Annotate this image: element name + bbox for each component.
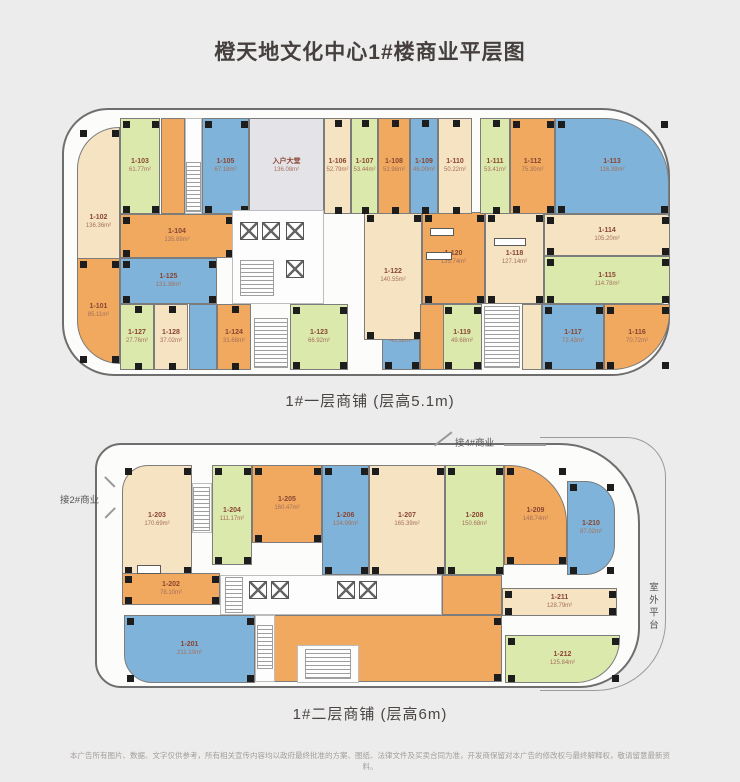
- column-marker-icon: [80, 261, 87, 268]
- column-marker-icon: [244, 468, 251, 475]
- unit-1-110: 1-11050.22m²: [438, 118, 472, 214]
- unit-label: 1-12727.76m²: [126, 329, 148, 345]
- unit-label: 1-212125.84m²: [550, 651, 575, 667]
- unit-1-204: 1-204111.17m²: [212, 465, 252, 565]
- column-marker-icon: [536, 215, 543, 222]
- column-marker-icon: [662, 296, 669, 303]
- column-marker-icon: [437, 468, 444, 475]
- column-marker-icon: [612, 638, 619, 645]
- equipment-box: [426, 252, 452, 260]
- unit-label: 1-207165.39m²: [394, 512, 419, 528]
- column-marker-icon: [547, 217, 554, 224]
- unit-1-210: 1-21087.02m²: [567, 481, 615, 575]
- unit-1-211: 1-211128.79m²: [502, 588, 617, 616]
- unit-1-106: 1-10652.79m²: [324, 118, 351, 214]
- caption-level2: 1#二层商铺 (层高6m): [0, 703, 740, 724]
- column-marker-icon: [255, 468, 262, 475]
- column-marker-icon: [125, 576, 132, 583]
- disclaimer-text: 本广告所有图片、数据、文字仅供参考，所有相关宣传内容均以政府最终批准的方案、图纸…: [70, 751, 670, 772]
- column-marker-icon: [215, 468, 222, 475]
- column-marker-icon: [127, 675, 134, 682]
- unit-label: 1-204111.17m²: [220, 507, 244, 523]
- unit-label: 1-206124.99m²: [333, 512, 358, 528]
- column-marker-icon: [425, 215, 432, 222]
- unit-1-116: 1-11670.72m²: [604, 304, 670, 370]
- leader-line: [504, 444, 546, 446]
- column-marker-icon: [662, 362, 669, 369]
- column-marker-icon: [152, 121, 159, 128]
- column-marker-icon: [112, 356, 119, 363]
- column-marker-icon: [340, 307, 347, 314]
- column-marker-icon: [448, 567, 455, 574]
- column-marker-icon: [325, 468, 332, 475]
- column-marker-icon: [596, 362, 603, 369]
- elevator-icon: [286, 260, 304, 278]
- unit-1-109: 1-10946.00m²: [410, 118, 438, 214]
- unit-label: 1-10753.44m²: [353, 158, 375, 174]
- unit-1-104: 1-104135.89m²: [120, 214, 234, 258]
- column-marker-icon: [169, 306, 176, 313]
- unit-label: 1-102136.36m²: [86, 214, 111, 230]
- column-marker-icon: [612, 675, 619, 682]
- caption-level1: 1#一层商铺 (层高5.1m): [0, 390, 740, 411]
- elevator-icon: [262, 222, 280, 240]
- column-marker-icon: [362, 207, 369, 214]
- unit-1-113: 1-113116.39m²: [555, 118, 669, 214]
- column-marker-icon: [496, 468, 503, 475]
- column-marker-icon: [453, 120, 460, 127]
- floorplan-level1: 1-102136.36m²1-10361.77m²1-10567.18m²入户大…: [62, 108, 670, 376]
- column-marker-icon: [340, 362, 347, 369]
- unit-label: 1-11949.68m²: [451, 329, 473, 345]
- unit-label: 入户大堂136.08m²: [273, 158, 301, 174]
- column-marker-icon: [232, 306, 239, 313]
- column-marker-icon: [536, 296, 543, 303]
- unit-1-111: 1-11153.41m²: [480, 118, 510, 214]
- unit-1-112: 1-11275.30m²: [510, 118, 555, 214]
- unit-label: 1-208150.68m²: [462, 512, 487, 528]
- column-marker-icon: [314, 468, 321, 475]
- column-marker-icon: [609, 591, 616, 598]
- column-marker-icon: [507, 557, 514, 564]
- floor-plan-poster: 橙天地文化中心1#楼商业平层图 1-102136.36m²1-10361.77m…: [0, 0, 740, 782]
- unit-1-108: 1-10852.98m²: [378, 118, 410, 214]
- column-marker-icon: [437, 567, 444, 574]
- unit-label: 1-12366.92m²: [308, 329, 330, 345]
- annotation-connect-building2: 接2#商业: [60, 492, 99, 506]
- unit-1-118: 1-118127.14m²: [485, 212, 544, 304]
- column-marker-icon: [488, 296, 495, 303]
- column-marker-icon: [662, 259, 669, 266]
- column-marker-icon: [513, 121, 520, 128]
- column-marker-icon: [425, 296, 432, 303]
- unit-1-105: 1-10567.18m²: [202, 118, 249, 214]
- page-title: 橙天地文化中心1#楼商业平层图: [0, 36, 740, 66]
- column-marker-icon: [255, 535, 262, 542]
- unit-1-205: 1-205160.47m²: [252, 465, 322, 543]
- column-marker-icon: [558, 121, 565, 128]
- unit-1-107: 1-10753.44m²: [351, 118, 378, 214]
- column-marker-icon: [547, 296, 554, 303]
- unit-1-123: 1-12366.92m²: [290, 304, 348, 370]
- column-marker-icon: [127, 618, 134, 625]
- unit-label: 1-10652.79m²: [326, 158, 348, 174]
- unit-1-115: 1-115114.78m²: [544, 256, 670, 304]
- column-marker-icon: [123, 250, 130, 257]
- staircase-icon: [305, 649, 351, 679]
- unit-1-213: [257, 615, 502, 682]
- column-marker-icon: [247, 675, 254, 682]
- column-marker-icon: [488, 215, 495, 222]
- column-marker-icon: [361, 567, 368, 574]
- unit-1-208: 1-208150.68m²: [445, 465, 504, 575]
- unit-1-209: 1-209148.74m²: [504, 465, 567, 565]
- annotation-connect-building4: 接4#商业: [455, 435, 494, 449]
- column-marker-icon: [570, 484, 577, 491]
- unit-label: 1-10946.00m²: [413, 158, 435, 174]
- unit-label: 1-21087.02m²: [580, 520, 602, 536]
- unit-1-127: 1-12727.76m²: [120, 304, 154, 370]
- floorplan-level2: 1-203170.69m²1-204111.17m²1-205160.47m²1…: [95, 443, 640, 688]
- column-marker-icon: [80, 130, 87, 137]
- column-marker-icon: [609, 608, 616, 615]
- unit-label: 1-10852.98m²: [383, 158, 405, 174]
- unit-label: 1-11772.43m²: [562, 329, 584, 345]
- column-marker-icon: [367, 215, 374, 222]
- unit-label: 1-203170.69m²: [144, 512, 169, 528]
- unit-label: 1-11153.41m²: [484, 158, 506, 174]
- unit-1-206: 1-206124.99m²: [322, 465, 369, 575]
- equipment-box: [137, 565, 161, 574]
- column-marker-icon: [448, 468, 455, 475]
- column-marker-icon: [169, 363, 176, 370]
- column-marker-icon: [362, 120, 369, 127]
- column-marker-icon: [445, 362, 452, 369]
- elevator-icon: [240, 222, 258, 240]
- unit-label: 1-12837.02m²: [160, 329, 182, 345]
- column-marker-icon: [453, 207, 460, 214]
- staircase-icon: [240, 260, 274, 296]
- unit-label: 1-10361.77m²: [129, 158, 151, 174]
- unit-extension: [420, 304, 444, 370]
- unit-1-122: 1-122140.55m²: [364, 212, 422, 340]
- column-marker-icon: [607, 307, 614, 314]
- unit-1-125: 1-125131.38m²: [120, 258, 217, 304]
- column-marker-icon: [212, 597, 219, 604]
- elevator-icon: [359, 581, 377, 599]
- column-marker-icon: [247, 618, 254, 625]
- annotation-outdoor-platform: 室外平台: [645, 582, 659, 632]
- column-marker-icon: [547, 121, 554, 128]
- column-marker-icon: [392, 120, 399, 127]
- column-marker-icon: [445, 307, 452, 314]
- column-marker-icon: [152, 206, 159, 213]
- unit-label: 1-122140.55m²: [380, 268, 405, 284]
- column-marker-icon: [662, 307, 669, 314]
- unit-label: 1-12431.68m²: [223, 329, 245, 345]
- column-marker-icon: [661, 206, 668, 213]
- column-marker-icon: [507, 468, 514, 475]
- column-marker-icon: [293, 362, 300, 369]
- column-marker-icon: [474, 307, 481, 314]
- unit-label: 1-104135.89m²: [164, 228, 189, 244]
- column-marker-icon: [125, 597, 132, 604]
- equipment-box: [430, 228, 454, 236]
- column-marker-icon: [241, 121, 248, 128]
- column-marker-icon: [508, 675, 515, 682]
- unit-1-117: 1-11772.43m²: [542, 304, 604, 370]
- column-marker-icon: [335, 207, 342, 214]
- column-marker-icon: [607, 567, 614, 574]
- column-marker-icon: [372, 567, 379, 574]
- column-marker-icon: [205, 206, 212, 213]
- column-marker-icon: [112, 261, 119, 268]
- column-marker-icon: [232, 363, 239, 370]
- elevator-icon: [271, 581, 289, 599]
- column-marker-icon: [184, 468, 191, 475]
- unit-入户大堂: 入户大堂136.08m²: [249, 118, 324, 214]
- unit-label: 1-114105.20m²: [594, 227, 619, 243]
- column-marker-icon: [422, 120, 429, 127]
- column-marker-icon: [293, 307, 300, 314]
- unit-label: 1-211128.79m²: [547, 594, 572, 610]
- column-marker-icon: [314, 535, 321, 542]
- column-marker-icon: [123, 261, 130, 268]
- unit-label: 1-113116.39m²: [600, 158, 625, 174]
- unit-label: 1-20278.10m²: [160, 581, 182, 597]
- column-marker-icon: [80, 356, 87, 363]
- unit-label: 1-205160.47m²: [274, 496, 299, 512]
- equipment-box: [494, 238, 526, 246]
- unit-1-207: 1-207165.39m²: [369, 465, 445, 575]
- column-marker-icon: [477, 215, 484, 222]
- staircase-icon: [186, 162, 201, 212]
- elevator-icon: [249, 581, 267, 599]
- column-marker-icon: [367, 332, 374, 339]
- unit-1-103: 1-10361.77m²: [120, 118, 160, 214]
- unit-extension: [442, 575, 502, 615]
- column-marker-icon: [422, 207, 429, 214]
- column-marker-icon: [508, 638, 515, 645]
- staircase-icon: [257, 625, 273, 669]
- column-marker-icon: [112, 130, 119, 137]
- column-marker-icon: [123, 296, 130, 303]
- column-marker-icon: [209, 261, 216, 268]
- unit-label: 1-209148.74m²: [523, 507, 548, 523]
- column-marker-icon: [135, 306, 142, 313]
- staircase-icon: [254, 318, 288, 368]
- column-marker-icon: [477, 296, 484, 303]
- column-marker-icon: [209, 296, 216, 303]
- column-marker-icon: [493, 120, 500, 127]
- column-marker-icon: [559, 557, 566, 564]
- column-marker-icon: [496, 567, 503, 574]
- unit-label: 1-11275.30m²: [521, 158, 543, 174]
- column-marker-icon: [505, 608, 512, 615]
- unit-1-119: 1-11949.68m²: [442, 304, 482, 370]
- column-marker-icon: [385, 362, 392, 369]
- column-marker-icon: [493, 207, 500, 214]
- column-marker-icon: [392, 207, 399, 214]
- unit-label: 1-118127.14m²: [502, 250, 527, 266]
- column-marker-icon: [215, 557, 222, 564]
- column-marker-icon: [212, 576, 219, 583]
- unit-label: 1-125131.38m²: [156, 273, 181, 289]
- column-marker-icon: [662, 217, 669, 224]
- unit-1-114: 1-114105.20m²: [544, 214, 670, 256]
- column-marker-icon: [596, 307, 603, 314]
- unit-1-201: 1-201211.10m²: [124, 615, 255, 683]
- column-marker-icon: [123, 206, 130, 213]
- elevator-icon: [337, 581, 355, 599]
- unit-label: 1-10185.11m²: [88, 303, 110, 319]
- elevator-icon: [286, 222, 304, 240]
- column-marker-icon: [607, 484, 614, 491]
- unit-label: 1-11670.72m²: [626, 329, 648, 345]
- column-marker-icon: [513, 206, 520, 213]
- column-marker-icon: [412, 362, 419, 369]
- unit-label: 1-11050.22m²: [444, 158, 466, 174]
- column-marker-icon: [505, 591, 512, 598]
- staircase-icon: [193, 487, 210, 531]
- column-marker-icon: [361, 468, 368, 475]
- column-marker-icon: [205, 121, 212, 128]
- column-marker-icon: [125, 468, 132, 475]
- staircase-icon: [225, 577, 243, 613]
- unit-label: 1-115114.78m²: [595, 272, 620, 288]
- unit-label: 1-10567.18m²: [214, 158, 236, 174]
- unit-1-203: 1-203170.69m²: [122, 465, 192, 575]
- column-marker-icon: [547, 259, 554, 266]
- unit-1-124: 1-12431.68m²: [217, 304, 251, 370]
- unit-1-212: 1-212125.84m²: [505, 635, 620, 683]
- column-marker-icon: [570, 567, 577, 574]
- unit-extension: [522, 304, 542, 370]
- column-marker-icon: [607, 362, 614, 369]
- column-marker-icon: [494, 674, 501, 681]
- column-marker-icon: [335, 120, 342, 127]
- unit-label: 1-201211.10m²: [177, 641, 202, 657]
- column-marker-icon: [123, 217, 130, 224]
- unit-1-202: 1-20278.10m²: [122, 573, 220, 605]
- column-marker-icon: [547, 248, 554, 255]
- column-marker-icon: [372, 468, 379, 475]
- column-marker-icon: [123, 121, 130, 128]
- unit-1-101: 1-10185.11m²: [77, 258, 120, 364]
- column-marker-icon: [474, 362, 481, 369]
- unit-extension: [189, 304, 217, 370]
- column-marker-icon: [558, 206, 565, 213]
- column-marker-icon: [135, 363, 142, 370]
- column-marker-icon: [545, 307, 552, 314]
- column-marker-icon: [414, 215, 421, 222]
- staircase-icon: [484, 306, 520, 368]
- column-marker-icon: [494, 618, 501, 625]
- column-marker-icon: [547, 206, 554, 213]
- column-marker-icon: [325, 567, 332, 574]
- unit-extension: [161, 118, 185, 214]
- column-marker-icon: [244, 557, 251, 564]
- column-marker-icon: [545, 362, 552, 369]
- column-marker-icon: [662, 248, 669, 255]
- column-marker-icon: [559, 468, 566, 475]
- column-marker-icon: [661, 121, 668, 128]
- unit-1-128: 1-12837.02m²: [154, 304, 188, 370]
